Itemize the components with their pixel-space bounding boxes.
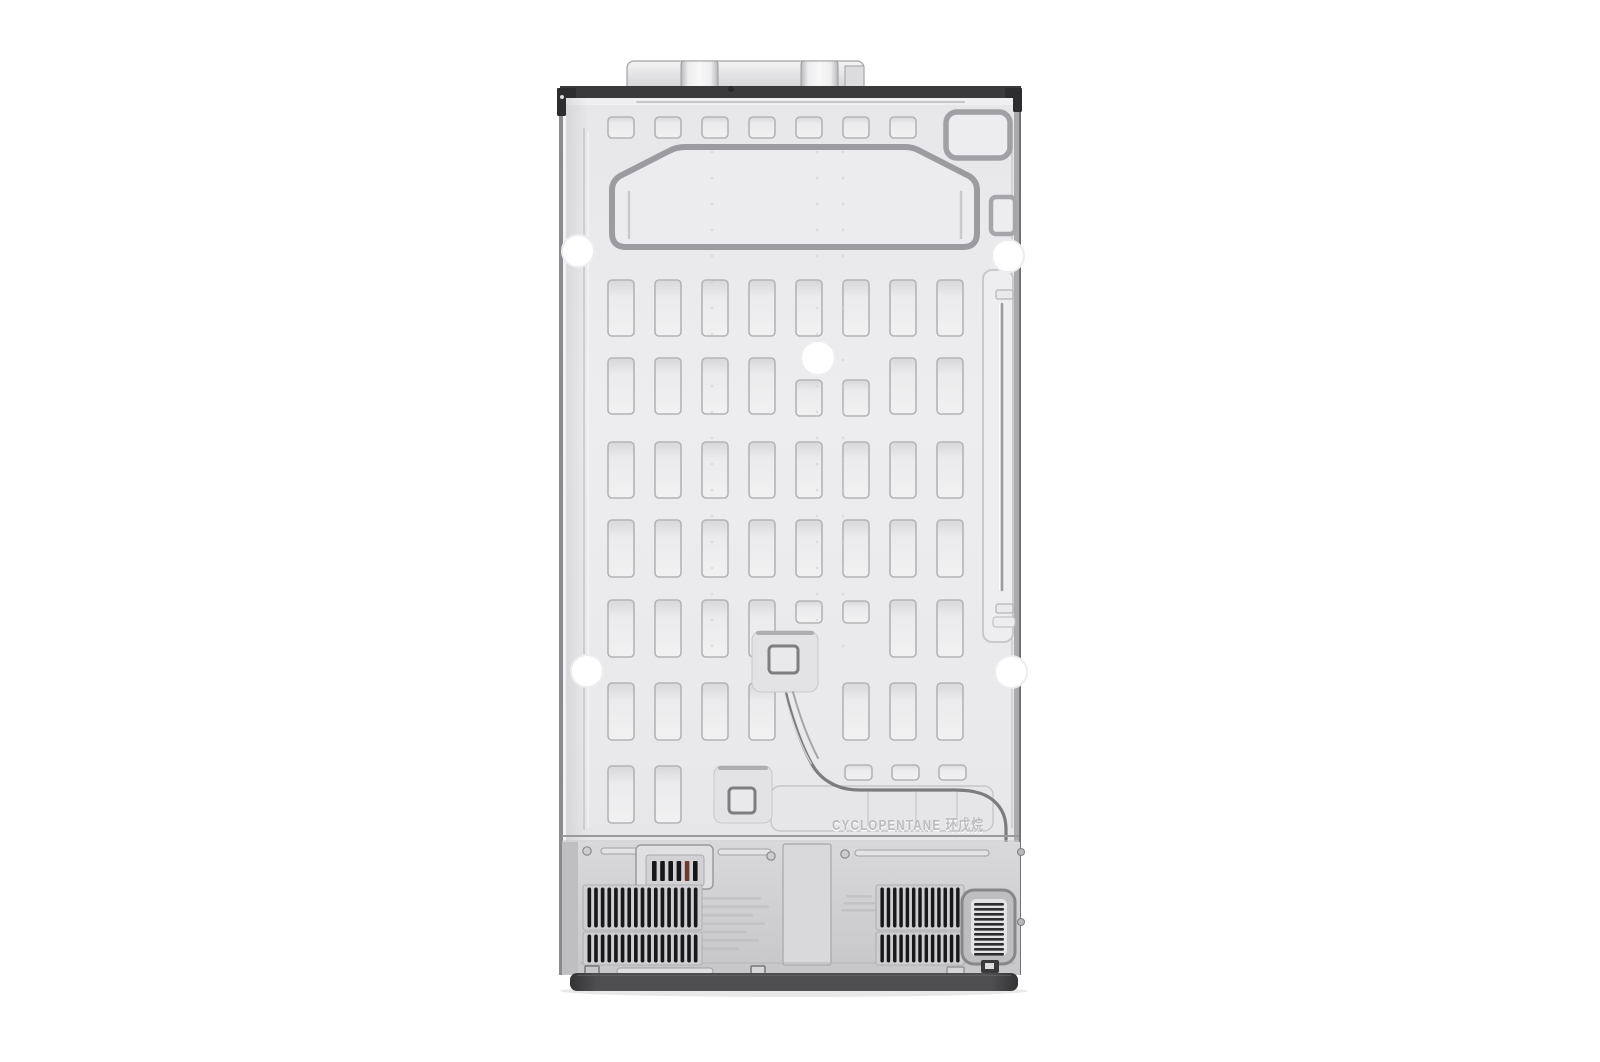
screw — [1018, 919, 1025, 926]
power-cord-block — [636, 845, 713, 889]
embossed-rect-small — [991, 197, 1015, 234]
vent-grille-right — [876, 885, 964, 965]
side-vent — [962, 890, 1015, 964]
hinge-pin-dot — [728, 86, 734, 92]
embossed-rect-top-right — [946, 112, 1010, 158]
screw — [1018, 849, 1025, 856]
screw — [583, 847, 591, 855]
screw — [841, 850, 849, 858]
vent-grille-left — [583, 885, 702, 965]
svg-text:CYCLOPENTANE 环戊烷: CYCLOPENTANE 环戊烷 — [832, 816, 984, 834]
center-access-pad — [752, 631, 818, 692]
service-channel — [983, 270, 1015, 642]
product-photo-canvas: CYCLOPENTANE 环戊烷 CYCLOPENTANE 环戊烷 — [0, 0, 1600, 1062]
cyclopentane-label: CYCLOPENTANE 环戊烷 CYCLOPENTANE 环戊烷 — [832, 816, 984, 836]
top-rail — [560, 86, 1021, 98]
base-bar — [570, 973, 1018, 991]
lower-access-pad — [714, 766, 772, 823]
screw — [767, 852, 775, 860]
embossed-recess-top — [612, 147, 977, 247]
center-divider-panel — [783, 844, 831, 965]
